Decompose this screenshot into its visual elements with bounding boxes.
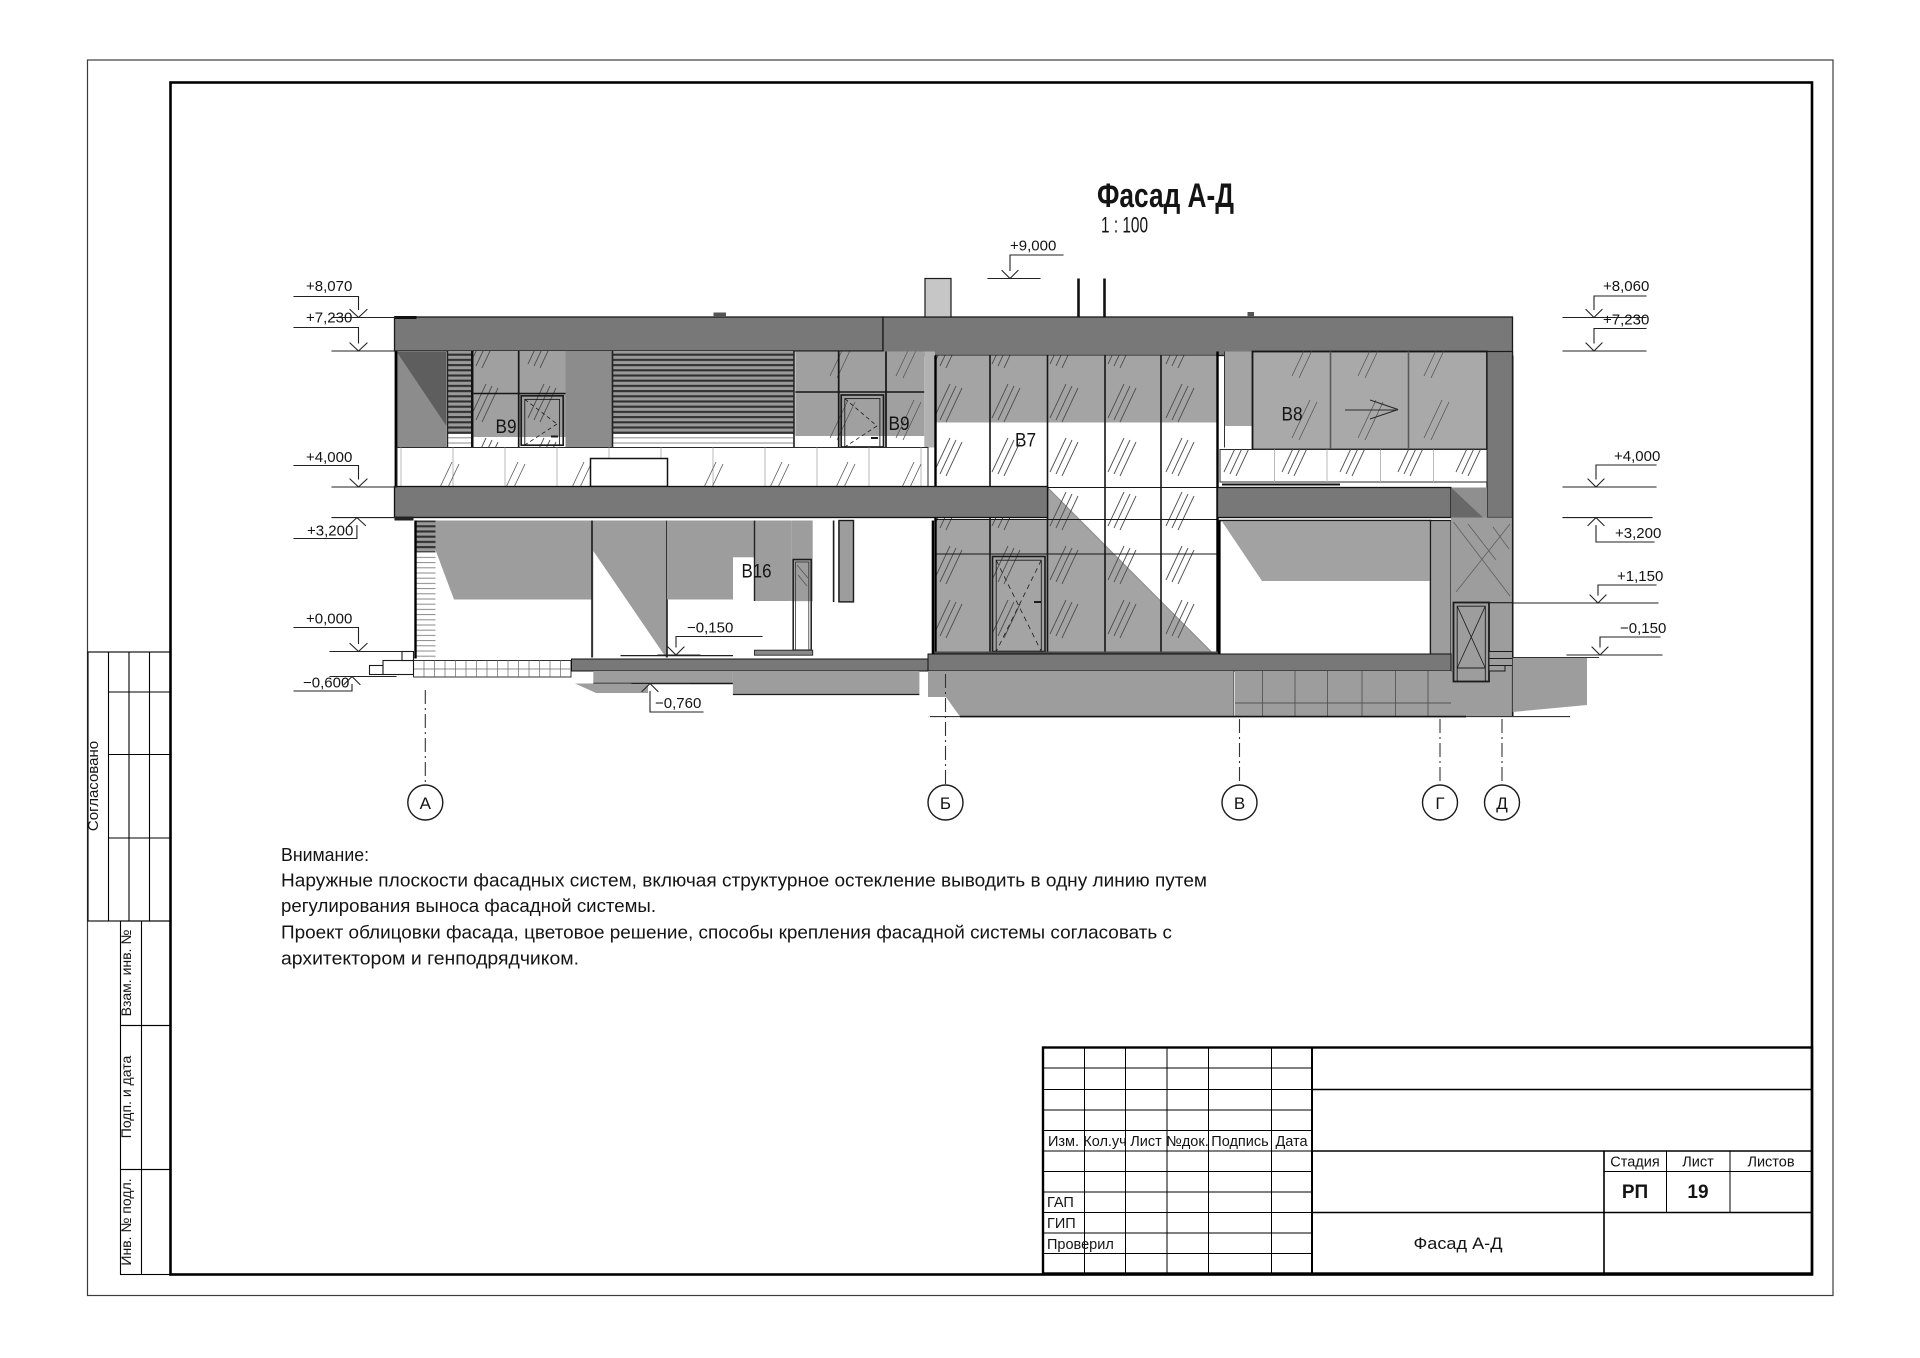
svg-text:+7,230: +7,230: [1603, 312, 1649, 329]
svg-text:архитектором и генподрядчиком.: архитектором и генподрядчиком.: [281, 949, 579, 969]
svg-text:−0,150: −0,150: [1620, 620, 1666, 637]
svg-text:Лист: Лист: [1130, 1134, 1162, 1150]
svg-text:Подп. и дата: Подп. и дата: [118, 1056, 134, 1139]
svg-text:1 : 100: 1 : 100: [1101, 213, 1148, 238]
svg-text:+1,150: +1,150: [1617, 568, 1663, 585]
svg-text:Подпись: Подпись: [1211, 1134, 1268, 1150]
svg-text:В8: В8: [1282, 405, 1303, 426]
svg-text:Внимание:: Внимание:: [281, 845, 369, 865]
svg-text:РП: РП: [1622, 1182, 1648, 1203]
svg-text:+4,000: +4,000: [1614, 448, 1660, 465]
svg-text:+9,000: +9,000: [1010, 238, 1056, 255]
svg-text:регулирования выноса фасадной: регулирования выноса фасадной системы.: [281, 896, 656, 916]
svg-text:−0,150: −0,150: [687, 620, 733, 637]
svg-text:+8,070: +8,070: [306, 278, 352, 295]
svg-text:Лист: Лист: [1682, 1155, 1714, 1171]
svg-text:Проверил: Проверил: [1047, 1237, 1114, 1253]
svg-text:Фасад А-Д: Фасад А-Д: [1414, 1234, 1504, 1253]
svg-text:Согласовано: Согласовано: [85, 741, 102, 831]
svg-text:ГИП: ГИП: [1047, 1216, 1076, 1232]
svg-text:В9: В9: [496, 417, 517, 438]
svg-text:Инв. № подл.: Инв. № подл.: [118, 1178, 134, 1265]
svg-text:Б: Б: [940, 794, 951, 813]
svg-text:19: 19: [1687, 1182, 1708, 1203]
svg-text:+3,200: +3,200: [1615, 525, 1661, 542]
svg-text:Листов: Листов: [1747, 1155, 1794, 1171]
svg-text:Дата: Дата: [1275, 1134, 1308, 1150]
svg-text:+3,200: +3,200: [307, 523, 353, 540]
svg-text:+4,000: +4,000: [306, 449, 352, 466]
svg-text:В16: В16: [742, 562, 772, 583]
svg-text:№док.: №док.: [1166, 1134, 1208, 1150]
svg-text:+7,230: +7,230: [306, 310, 352, 327]
svg-text:+8,060: +8,060: [1603, 278, 1649, 295]
svg-text:−0,760: −0,760: [655, 695, 701, 712]
svg-text:ГАП: ГАП: [1047, 1195, 1074, 1211]
svg-text:Стадия: Стадия: [1610, 1155, 1659, 1171]
svg-text:Изм.: Изм.: [1048, 1134, 1079, 1150]
svg-text:Фасад А-Д: Фасад А-Д: [1097, 177, 1234, 215]
svg-text:В9: В9: [889, 414, 910, 435]
svg-text:Г: Г: [1435, 794, 1444, 813]
svg-text:Проект облицовки фасада, цвето: Проект облицовки фасада, цветовое решени…: [281, 923, 1172, 943]
svg-text:Взам. инв. №: Взам. инв. №: [118, 930, 134, 1017]
svg-text:Кол.уч: Кол.уч: [1083, 1134, 1127, 1150]
svg-text:Наружные плоскости фасадных си: Наружные плоскости фасадных систем, вклю…: [281, 871, 1207, 891]
svg-text:В7: В7: [1015, 431, 1036, 452]
svg-text:А: А: [420, 794, 432, 813]
svg-text:+0,000: +0,000: [306, 611, 352, 628]
svg-text:Д: Д: [1496, 794, 1508, 813]
svg-text:В: В: [1234, 794, 1245, 813]
